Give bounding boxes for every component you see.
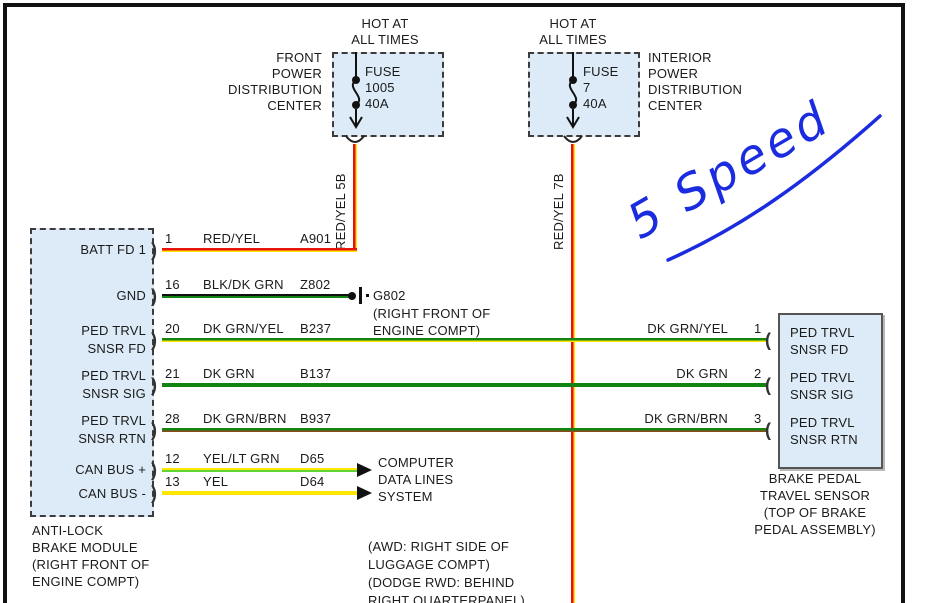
- wiring-diagram: HOT AT ALL TIMES FRONT POWER DISTRIBUTIO…: [0, 0, 935, 603]
- annotation-text: 5 Speed: [618, 90, 840, 251]
- handwritten-annotation: 5 Speed: [0, 0, 935, 603]
